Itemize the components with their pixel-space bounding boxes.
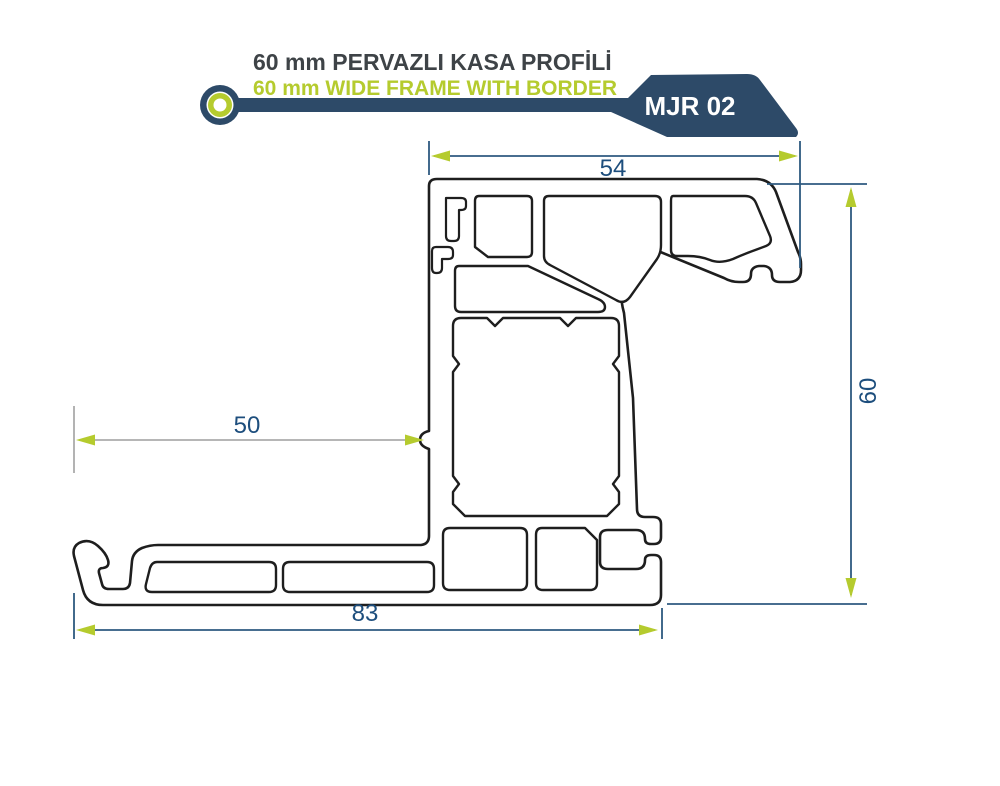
logo-core <box>214 99 227 112</box>
arrowhead-left <box>76 435 95 446</box>
dimension-label: 54 <box>600 155 627 182</box>
chamber-main <box>453 318 619 516</box>
chamber-bottom-d <box>536 528 597 590</box>
arrowhead-up <box>846 187 857 207</box>
chamber-top-small <box>475 196 532 257</box>
logo-mark <box>200 85 240 125</box>
arrowhead-down <box>846 578 857 598</box>
profile-drawing-svg: 60 mm PERVAZLI KASA PROFİLİ 60 mm WIDE F… <box>0 0 1000 786</box>
technical-drawing-page: 60 mm PERVAZLI KASA PROFİLİ 60 mm WIDE F… <box>0 0 1000 786</box>
chamber-bottom-left-b <box>283 562 434 592</box>
dimension-label: 60 <box>855 378 882 405</box>
arrowhead-right <box>639 625 658 636</box>
page-subtitle: 60 mm WIDE FRAME WITH BORDER <box>253 77 617 100</box>
header: 60 mm PERVAZLI KASA PROFİLİ 60 mm WIDE F… <box>200 49 798 137</box>
arrowhead-left <box>431 151 450 162</box>
chamber-bottom-c <box>443 528 527 590</box>
profile-cross-section <box>74 179 801 605</box>
profile-code-badge: MJR 02 <box>644 91 735 121</box>
dimension-label: 50 <box>234 412 261 439</box>
arrowhead-left <box>76 625 95 636</box>
arrowhead-right <box>779 151 798 162</box>
chamber-bottom-left-a <box>146 562 276 592</box>
dimension-label: 83 <box>352 600 379 627</box>
page-title: 60 mm PERVAZLI KASA PROFİLİ <box>253 49 612 75</box>
dimension-mid-50: 50 <box>74 406 424 473</box>
